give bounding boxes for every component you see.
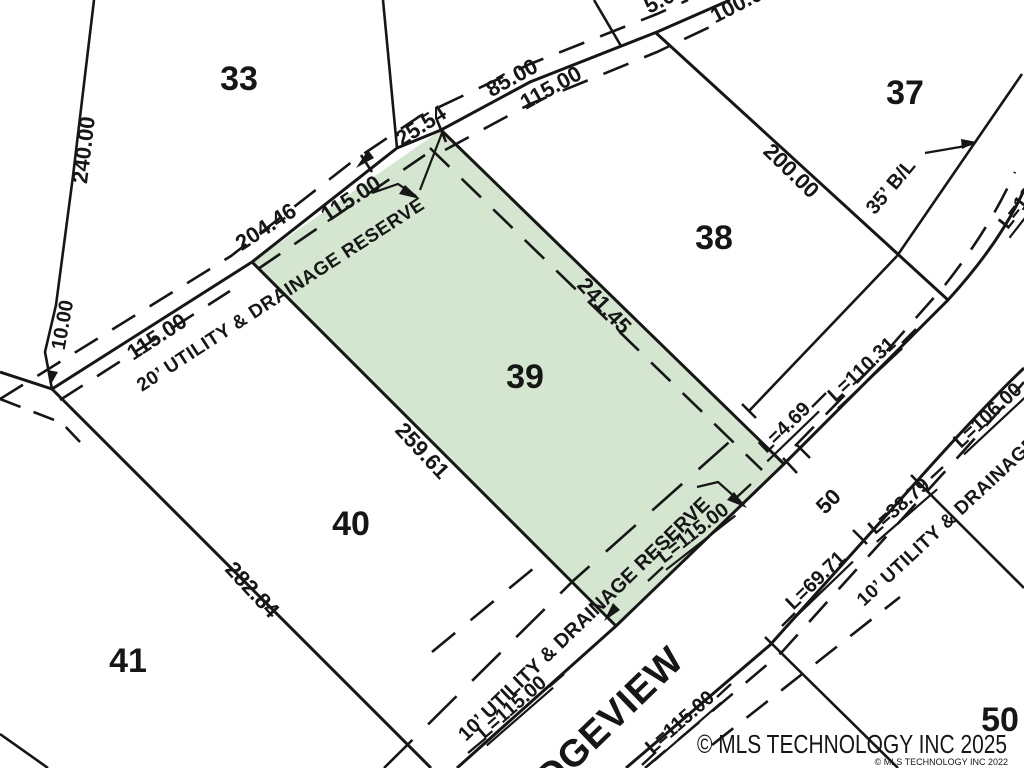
svg-text:38: 38	[695, 219, 733, 257]
svg-text:41: 41	[109, 642, 147, 680]
svg-text:© MLS TECHNOLOGY INC 2025: © MLS TECHNOLOGY INC 2025	[697, 729, 1007, 759]
svg-text:33: 33	[220, 60, 258, 98]
svg-text:40: 40	[332, 505, 370, 543]
svg-text:© MLS TECHNOLOGY INC 2022: © MLS TECHNOLOGY INC 2022	[875, 757, 1008, 767]
svg-text:37: 37	[886, 74, 924, 112]
svg-text:39: 39	[506, 358, 544, 396]
